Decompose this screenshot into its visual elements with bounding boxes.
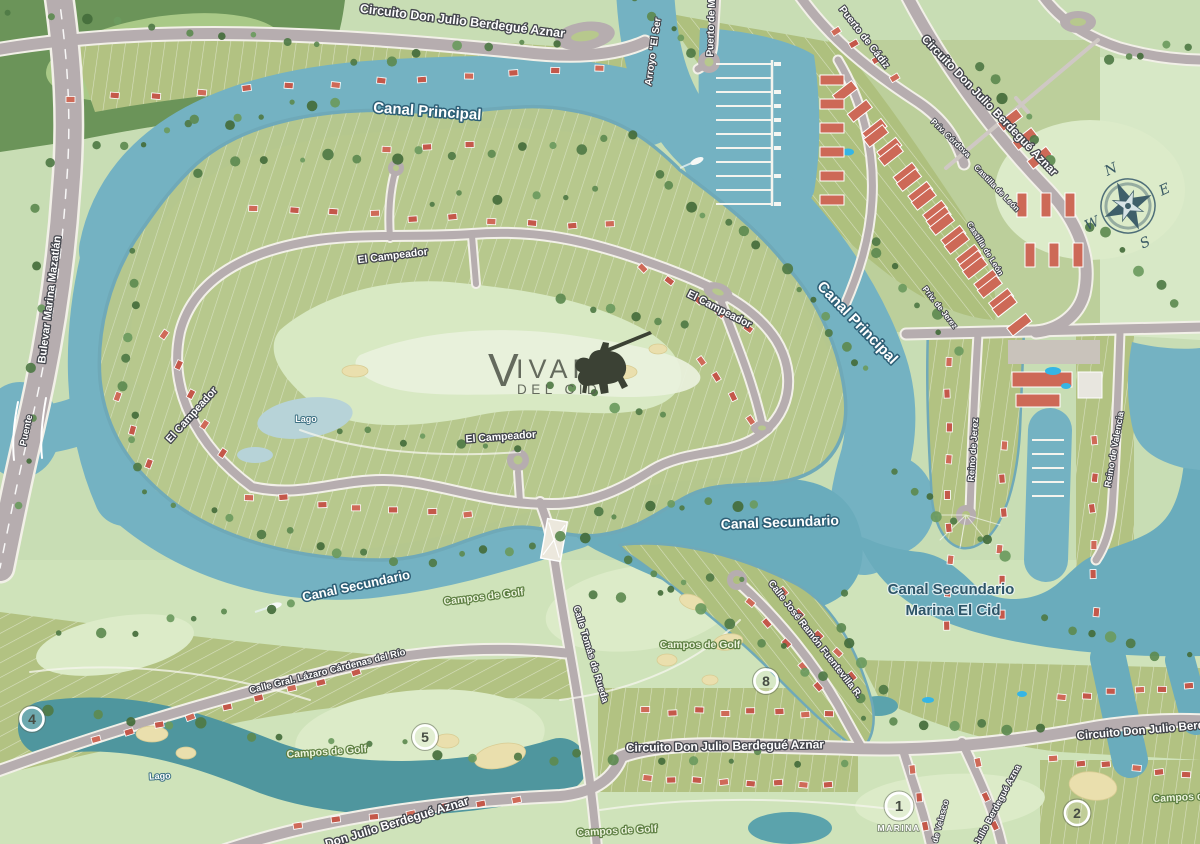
label-canal-sec-marina-2: Marina El Cid	[905, 602, 1000, 619]
label-puerto-de-m: Puerto de M	[705, 0, 718, 57]
label-lago-island: Lago	[295, 414, 317, 424]
label-lago-bottom: Lago	[149, 770, 171, 781]
label-canal-sec-marina-1: Canal Secundario	[888, 581, 1015, 598]
golf-hole-marker-4: 4	[19, 706, 46, 733]
map-canvas: N E S W V IVAR DEL CID Circuito Don Juli…	[0, 0, 1200, 844]
marker-8-number: 8	[762, 673, 770, 689]
label-golf-b: Campos de Golf	[660, 639, 741, 651]
marker-1-number: 1	[895, 798, 903, 815]
golf-hole-marker-8: 8	[753, 668, 780, 695]
marker-5-number: 5	[421, 729, 429, 745]
golf-hole-marker-5: 5	[412, 724, 439, 751]
logo-v: V	[488, 344, 519, 396]
marker-4-number: 4	[28, 711, 36, 727]
marker-2-number: 2	[1073, 805, 1081, 821]
resort-masterplan-map: N E S W V IVAR DEL CID Circuito Don Juli…	[0, 0, 1200, 844]
golf-hole-marker-2: 2	[1063, 799, 1091, 827]
marker-1-label: MARINA	[878, 823, 921, 833]
